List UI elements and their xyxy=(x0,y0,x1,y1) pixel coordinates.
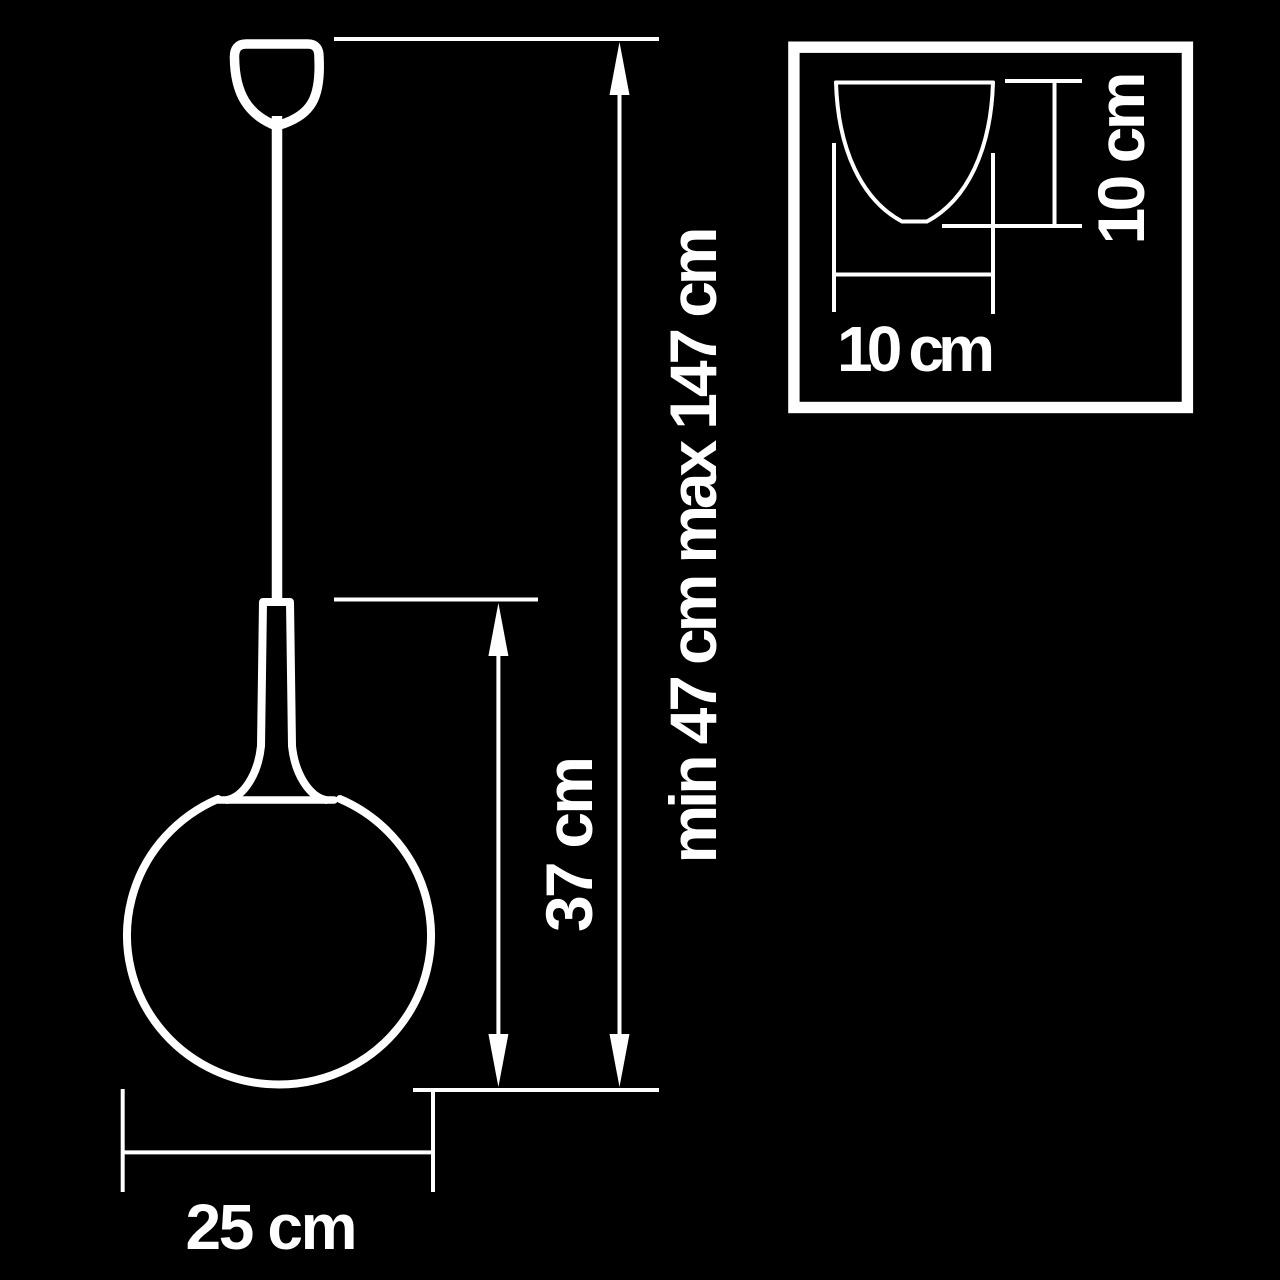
svg-text:10 cm: 10 cm xyxy=(1084,72,1158,245)
svg-text:min 47 cm max 147 cm: min 47 cm max 147 cm xyxy=(656,227,730,864)
svg-text:10 cm: 10 cm xyxy=(837,313,995,385)
svg-text:25 cm: 25 cm xyxy=(186,1191,358,1263)
svg-text:37 cm: 37 cm xyxy=(532,756,606,932)
